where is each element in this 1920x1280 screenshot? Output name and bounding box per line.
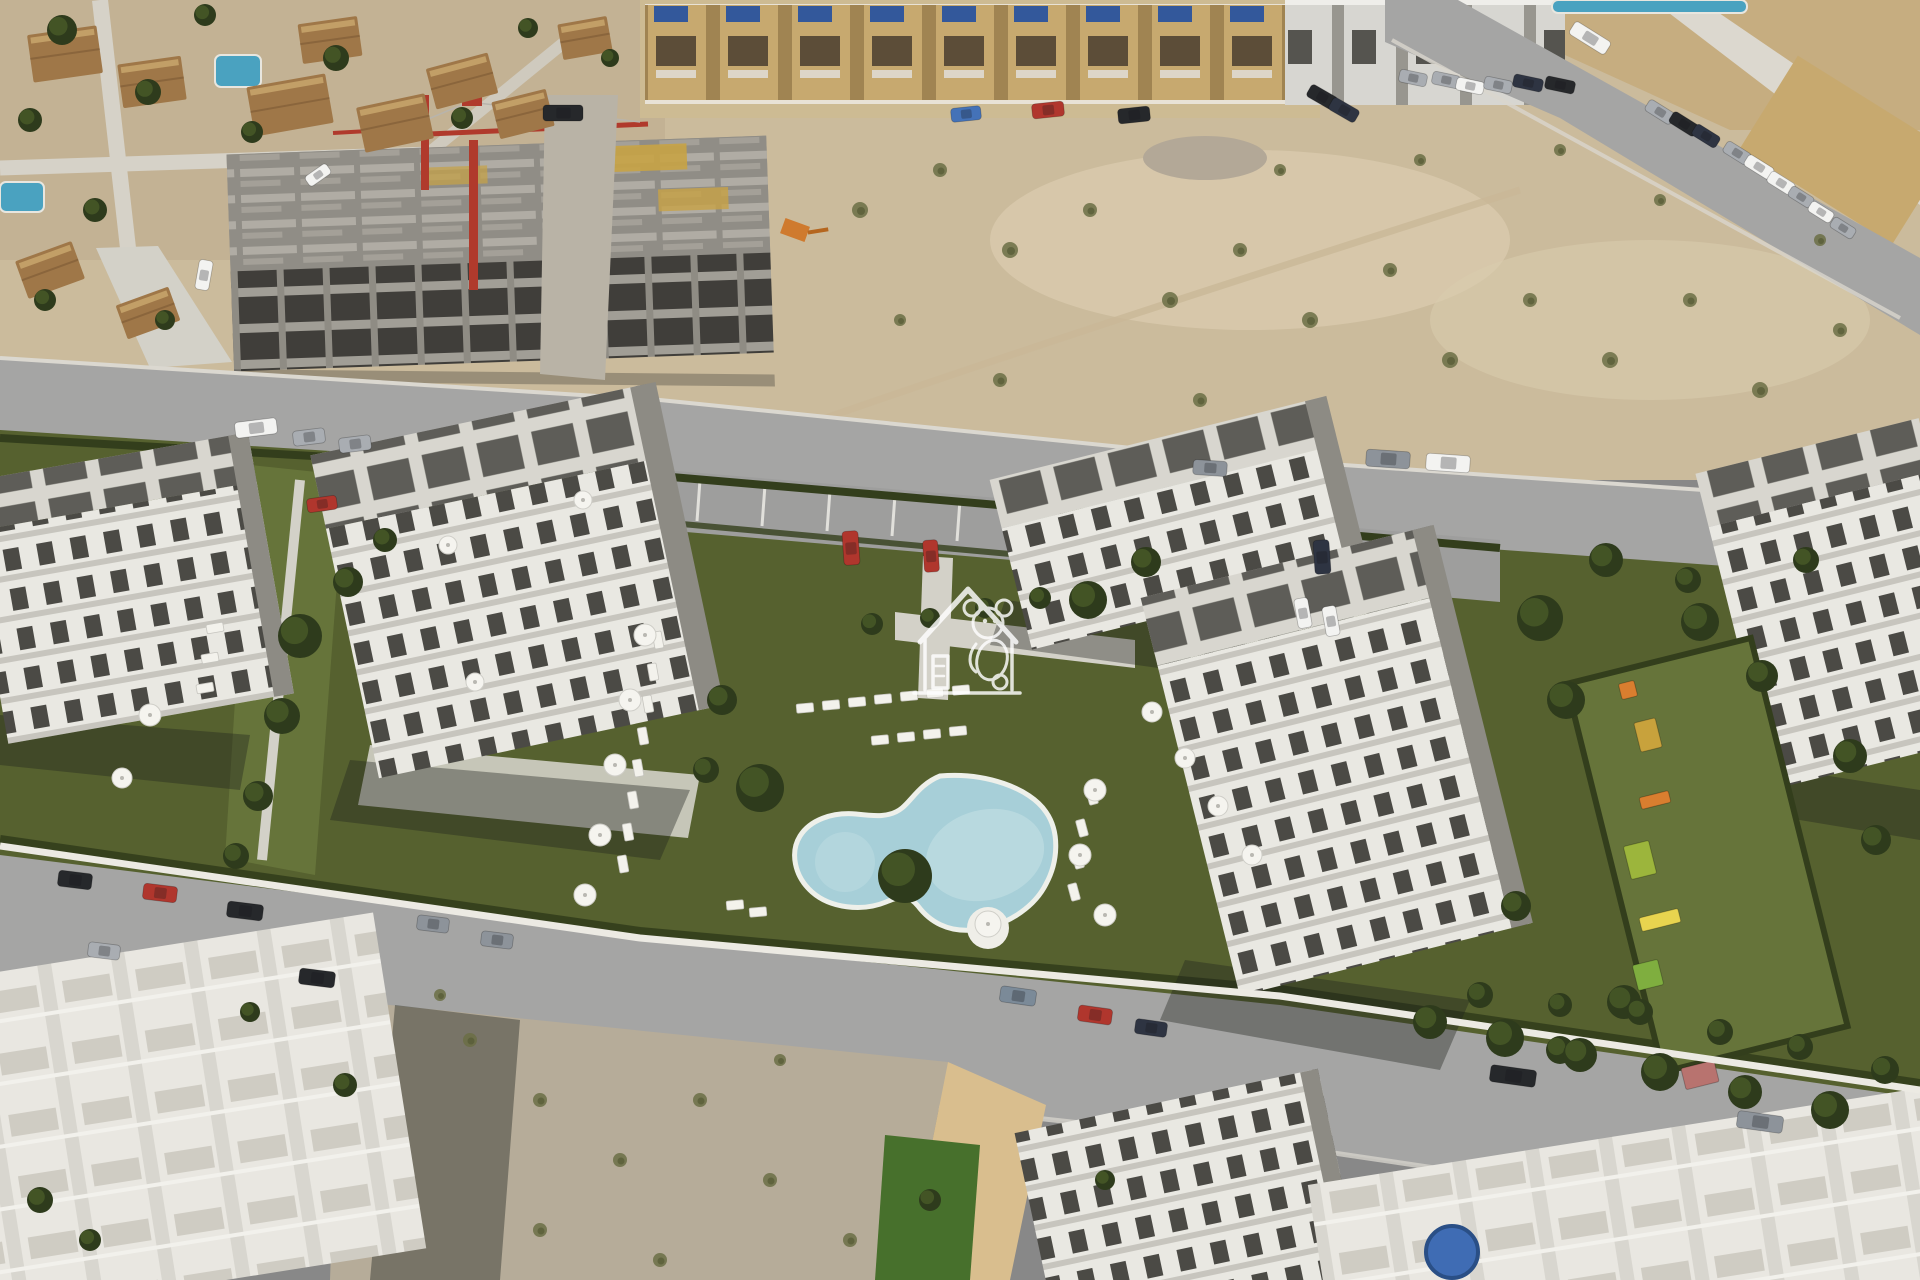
small-pool	[0, 182, 44, 212]
sun-lounger	[848, 697, 866, 707]
car	[922, 540, 939, 573]
sun-lounger	[822, 700, 840, 710]
car	[1425, 453, 1470, 473]
sun-lounger	[874, 694, 892, 704]
pool-highlight	[815, 832, 875, 892]
plywood-stack	[658, 187, 729, 211]
car	[1313, 539, 1331, 574]
sun-lounger	[923, 729, 941, 739]
small-pool	[215, 55, 261, 87]
small-pool	[1552, 0, 1747, 13]
car	[1365, 449, 1410, 469]
aerial-photo-stage	[0, 0, 1920, 1280]
sun-lounger	[871, 735, 889, 745]
play-structure	[1618, 680, 1637, 699]
apartment-block-left	[0, 432, 294, 743]
sun-lounger	[949, 726, 967, 736]
vertical-connector-road	[540, 95, 618, 380]
tan-townhouse-row	[645, 4, 1300, 104]
dirt-mound	[1143, 136, 1267, 180]
play-structure	[1632, 959, 1664, 991]
sun-lounger	[796, 703, 814, 713]
car	[950, 105, 981, 122]
trampoline-layer	[1426, 1226, 1478, 1278]
car	[1117, 106, 1150, 124]
aerial-photo	[0, 0, 1920, 1280]
sun-lounger	[726, 900, 744, 910]
sun-lounger	[749, 907, 767, 917]
car	[842, 530, 860, 565]
construction-facade	[231, 253, 774, 372]
car	[543, 105, 583, 121]
bottom-left-villas	[0, 912, 426, 1280]
crane-mast	[469, 140, 478, 290]
sun-lounger	[897, 732, 915, 742]
dirt-light-patch	[990, 150, 1510, 330]
plywood-stack	[427, 165, 488, 185]
trampoline	[1426, 1226, 1478, 1278]
car	[1031, 101, 1064, 119]
car	[1193, 459, 1228, 476]
